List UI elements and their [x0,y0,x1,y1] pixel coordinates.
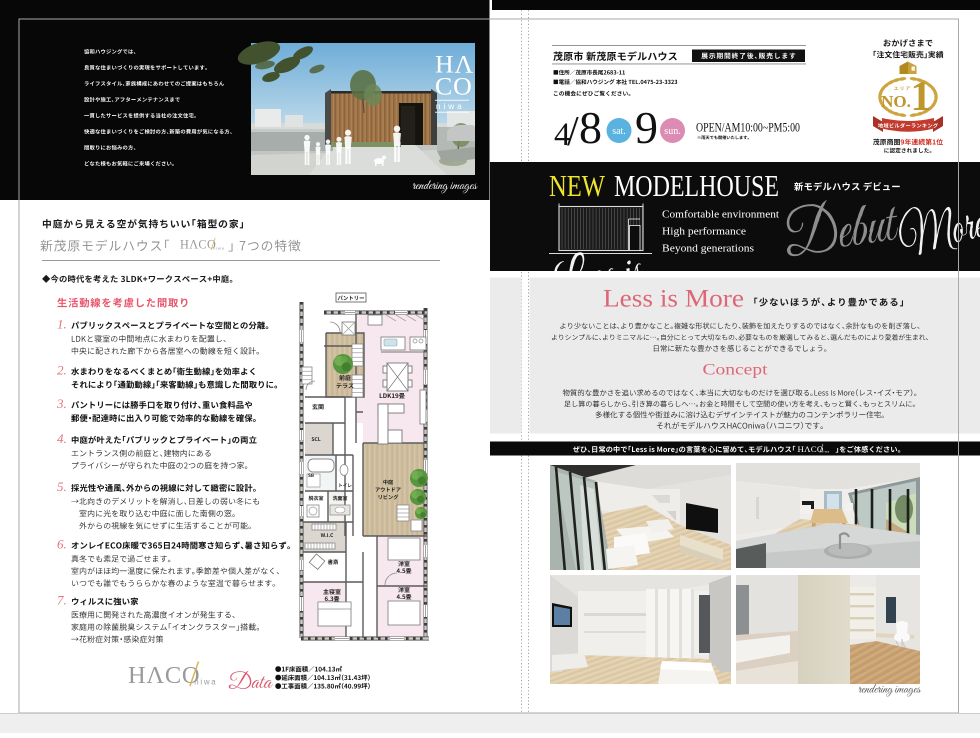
svg-text:1: 1 [911,74,932,120]
svg-text:sun.: sun. [664,126,680,137]
svg-text:6.: 6. [57,537,67,552]
svg-text:3.: 3. [56,396,67,411]
svg-text:niwa: niwa [436,102,465,111]
svg-text:4.: 4. [57,431,67,446]
svg-text:HΛCO: HΛCO [128,662,200,689]
svg-text:niwa: niwa [194,678,217,687]
svg-text:Comfortable environment: Comfortable environment [662,209,779,221]
svg-text:2.: 2. [57,363,67,378]
svg-text:niwa: niwa [213,245,225,250]
svg-text:1.: 1. [57,317,67,332]
svg-text:5.: 5. [57,479,67,494]
svg-text:7.: 7. [57,593,67,608]
svg-text:MODELHOUSE: MODELHOUSE [614,168,779,203]
svg-text:OPEN/AM10:00~PM5:00: OPEN/AM10:00~PM5:00 [696,120,800,135]
svg-text:Concept: Concept [703,362,769,379]
svg-text:9: 9 [635,102,658,153]
svg-text:Less is More: Less is More [603,286,744,313]
svg-text:sat.: sat. [612,126,626,137]
svg-text:niwa: niwa [821,449,829,453]
svg-text:NO.: NO. [881,92,911,111]
svg-text:NEW: NEW [549,168,606,203]
svg-text:Beyond generations: Beyond generations [662,243,754,255]
svg-text:CO: CO [435,71,473,100]
svg-text:HΛCO: HΛCO [180,238,216,252]
svg-text:/: / [567,109,579,155]
svg-text:High performance: High performance [662,226,746,238]
svg-text:8: 8 [579,102,602,153]
